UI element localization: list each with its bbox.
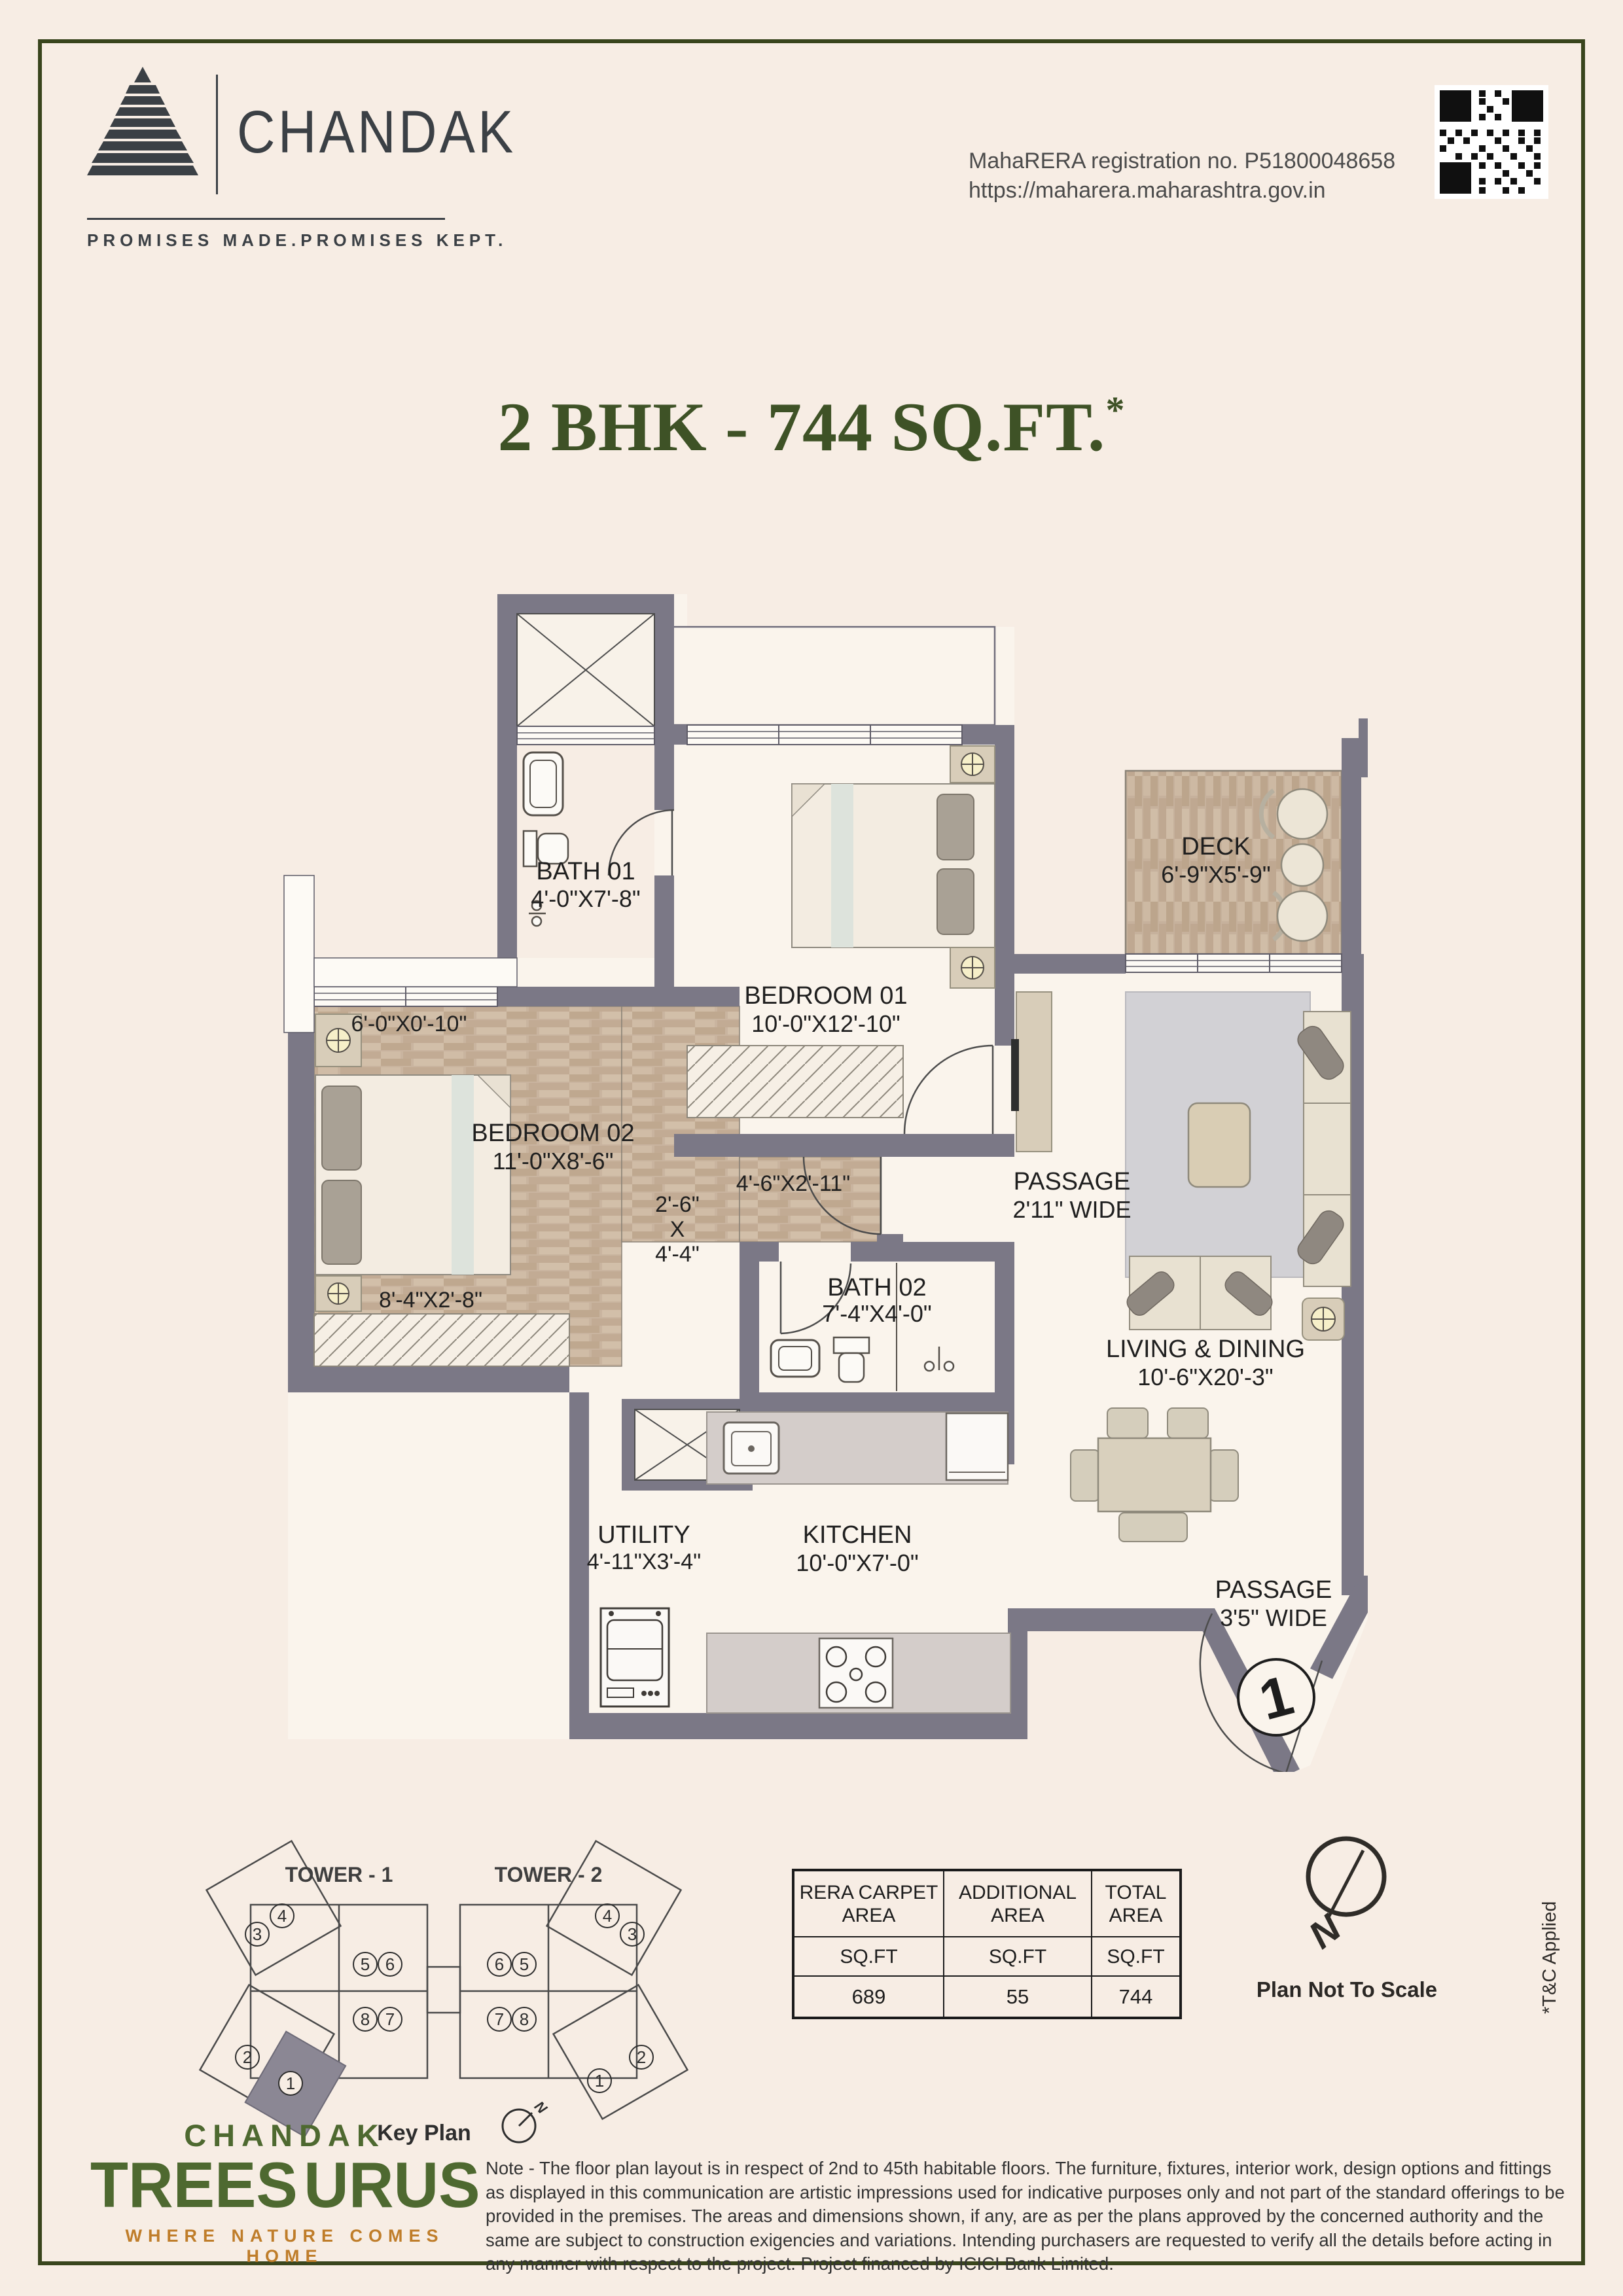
label-passage1: PASSAGE bbox=[1014, 1168, 1131, 1195]
entrance-unit-marker: 1 bbox=[1238, 1659, 1314, 1735]
label-wardrobe2-dims: 8'-4"X2'-8" bbox=[379, 1288, 482, 1313]
brand-name: CHANDAK bbox=[237, 98, 516, 167]
label-nook-w: 2'-6" bbox=[655, 1192, 700, 1217]
brand-tagline: PROMISES MADE.PROMISES KEPT. bbox=[87, 230, 507, 251]
chandak-pyramid-logo-icon bbox=[87, 65, 198, 196]
label-niche-dims: 6'-0"X0'-10" bbox=[351, 1012, 467, 1036]
key-plan: 3 4 5 6 8 7 2 1 6 5 7 8 4 3 1 2 TOWER - … bbox=[162, 1803, 728, 2150]
area-value-additional: 55 bbox=[944, 1976, 1092, 2018]
bay-sill bbox=[314, 958, 517, 987]
key-plan-north-icon: N bbox=[503, 2098, 551, 2142]
svg-text:3: 3 bbox=[253, 1924, 262, 1944]
deck-window bbox=[1126, 954, 1342, 972]
page-title-text: 2 BHK - 744 SQ.FT. bbox=[498, 389, 1106, 465]
side-table-fan-icon bbox=[1302, 1298, 1344, 1340]
svg-text:N: N bbox=[531, 2098, 551, 2117]
svg-text:2: 2 bbox=[637, 2047, 646, 2067]
bedroom01-window bbox=[687, 725, 962, 745]
label-passage2: PASSAGE bbox=[1215, 1576, 1332, 1604]
footer-brand-left: TREES bbox=[90, 2148, 298, 2222]
label-passage1-dims: 2'11" WIDE bbox=[1012, 1196, 1131, 1223]
svg-text:5: 5 bbox=[520, 1954, 529, 1974]
north-compass-icon: N bbox=[1284, 1824, 1408, 1975]
ac-unit-icon bbox=[950, 746, 995, 783]
svg-text:4: 4 bbox=[603, 1906, 612, 1926]
label-bath01-dims: 4'-0"X7'-8" bbox=[531, 885, 640, 912]
label-passage2-dims: 3'5" WIDE bbox=[1220, 1604, 1327, 1631]
label-kitchen-dims: 10'-0"X7'-0" bbox=[796, 1549, 918, 1576]
label-deck: DECK bbox=[1181, 833, 1251, 860]
label-bedroom02: BEDROOM 02 bbox=[471, 1120, 634, 1147]
page-title: 2 BHK - 744 SQ.FT.* bbox=[0, 387, 1623, 467]
area-table-header-2: ADDITIONALAREA bbox=[944, 1870, 1092, 1937]
label-bath02: BATH 02 bbox=[827, 1274, 926, 1301]
area-table-header-1: RERA CARPETAREA bbox=[793, 1870, 944, 1937]
svg-text:5: 5 bbox=[361, 1954, 370, 1974]
label-utility-dims: 4'-11"X3'-4" bbox=[587, 1549, 701, 1574]
label-bedroom01-dims: 10'-0"X12'-10" bbox=[751, 1010, 900, 1037]
bedroom02-window bbox=[314, 987, 497, 1006]
washing-machine-icon bbox=[601, 1608, 669, 1706]
shaft-window bbox=[517, 726, 654, 745]
svg-text:8: 8 bbox=[520, 2009, 529, 2029]
label-living-dims: 10'-6"X20'-3" bbox=[1137, 1364, 1273, 1390]
qr-code bbox=[1435, 85, 1548, 199]
plan-not-to-scale: Plan Not To Scale bbox=[1236, 1977, 1458, 2002]
area-unit-3: SQ.FT bbox=[1092, 1937, 1181, 1976]
label-deck-dims: 6'-9"X5'-9" bbox=[1161, 861, 1270, 888]
label-bath02-dims: 7'-4"X4'-0" bbox=[822, 1300, 931, 1327]
tnc-applied: *T&C Applied bbox=[1539, 1883, 1561, 2014]
footer-tagline: WHERE NATURE COMES HOME bbox=[111, 2226, 458, 2267]
footer-brand-right: URUS bbox=[304, 2148, 480, 2222]
ac-unit-icon bbox=[315, 1276, 361, 1311]
label-bath01: BATH 01 bbox=[536, 858, 635, 885]
footer-brand-treesourus: TREES URUS bbox=[111, 2148, 458, 2222]
label-nook-x: X bbox=[670, 1217, 685, 1242]
svg-text:8: 8 bbox=[361, 2009, 370, 2029]
label-kitchen: KITCHEN bbox=[803, 1521, 912, 1549]
rera-registration: MahaRERA registration no. P51800048658 bbox=[969, 147, 1395, 176]
footer-note: Note - The floor plan layout is in respe… bbox=[486, 2157, 1569, 2276]
label-bedroom02-dims: 11'-0"X8'-6" bbox=[493, 1148, 614, 1174]
ledge-outline bbox=[654, 627, 995, 725]
area-unit-1: SQ.FT bbox=[793, 1937, 944, 1976]
floor-plan: 1 BATH 01 4'-0"X7'-8" BEDROOM 01 10'-0"X… bbox=[255, 588, 1368, 1772]
svg-text:6: 6 bbox=[385, 1954, 395, 1974]
bay-ledge bbox=[284, 875, 314, 1033]
tower1-label: TOWER - 1 bbox=[285, 1863, 393, 1886]
label-wardrobe1-dims: 4'-6"X2'-11" bbox=[736, 1171, 850, 1196]
svg-text:6: 6 bbox=[495, 1954, 504, 1974]
brand-rule bbox=[87, 218, 445, 220]
svg-text:7: 7 bbox=[385, 2009, 395, 2029]
logo-divider bbox=[216, 75, 218, 194]
rera-url: https://maharera.maharashtra.gov.in bbox=[969, 176, 1395, 205]
svg-text:3: 3 bbox=[628, 1924, 637, 1944]
area-table: RERA CARPETAREA ADDITIONALAREA TOTALAREA… bbox=[792, 1869, 1182, 2019]
svg-text:4: 4 bbox=[277, 1906, 287, 1926]
area-value-rera: 689 bbox=[793, 1976, 944, 2018]
svg-text:1: 1 bbox=[595, 2071, 604, 2091]
svg-text:2: 2 bbox=[243, 2047, 252, 2067]
label-nook-h: 4'-4" bbox=[655, 1242, 700, 1267]
label-bedroom01: BEDROOM 01 bbox=[744, 982, 907, 1010]
rera-info: MahaRERA registration no. P51800048658 h… bbox=[969, 147, 1395, 205]
area-table-header-3: TOTALAREA bbox=[1092, 1870, 1181, 1937]
page-title-asterisk: * bbox=[1105, 389, 1125, 431]
label-living: LIVING & DINING bbox=[1106, 1335, 1305, 1363]
svg-text:7: 7 bbox=[495, 2009, 504, 2029]
ac-unit-icon bbox=[950, 947, 995, 988]
tower2-label: TOWER - 2 bbox=[495, 1863, 603, 1886]
svg-text:1: 1 bbox=[286, 2074, 295, 2093]
area-value-total: 744 bbox=[1092, 1976, 1181, 2018]
area-unit-2: SQ.FT bbox=[944, 1937, 1092, 1976]
label-utility: UTILITY bbox=[597, 1521, 690, 1549]
